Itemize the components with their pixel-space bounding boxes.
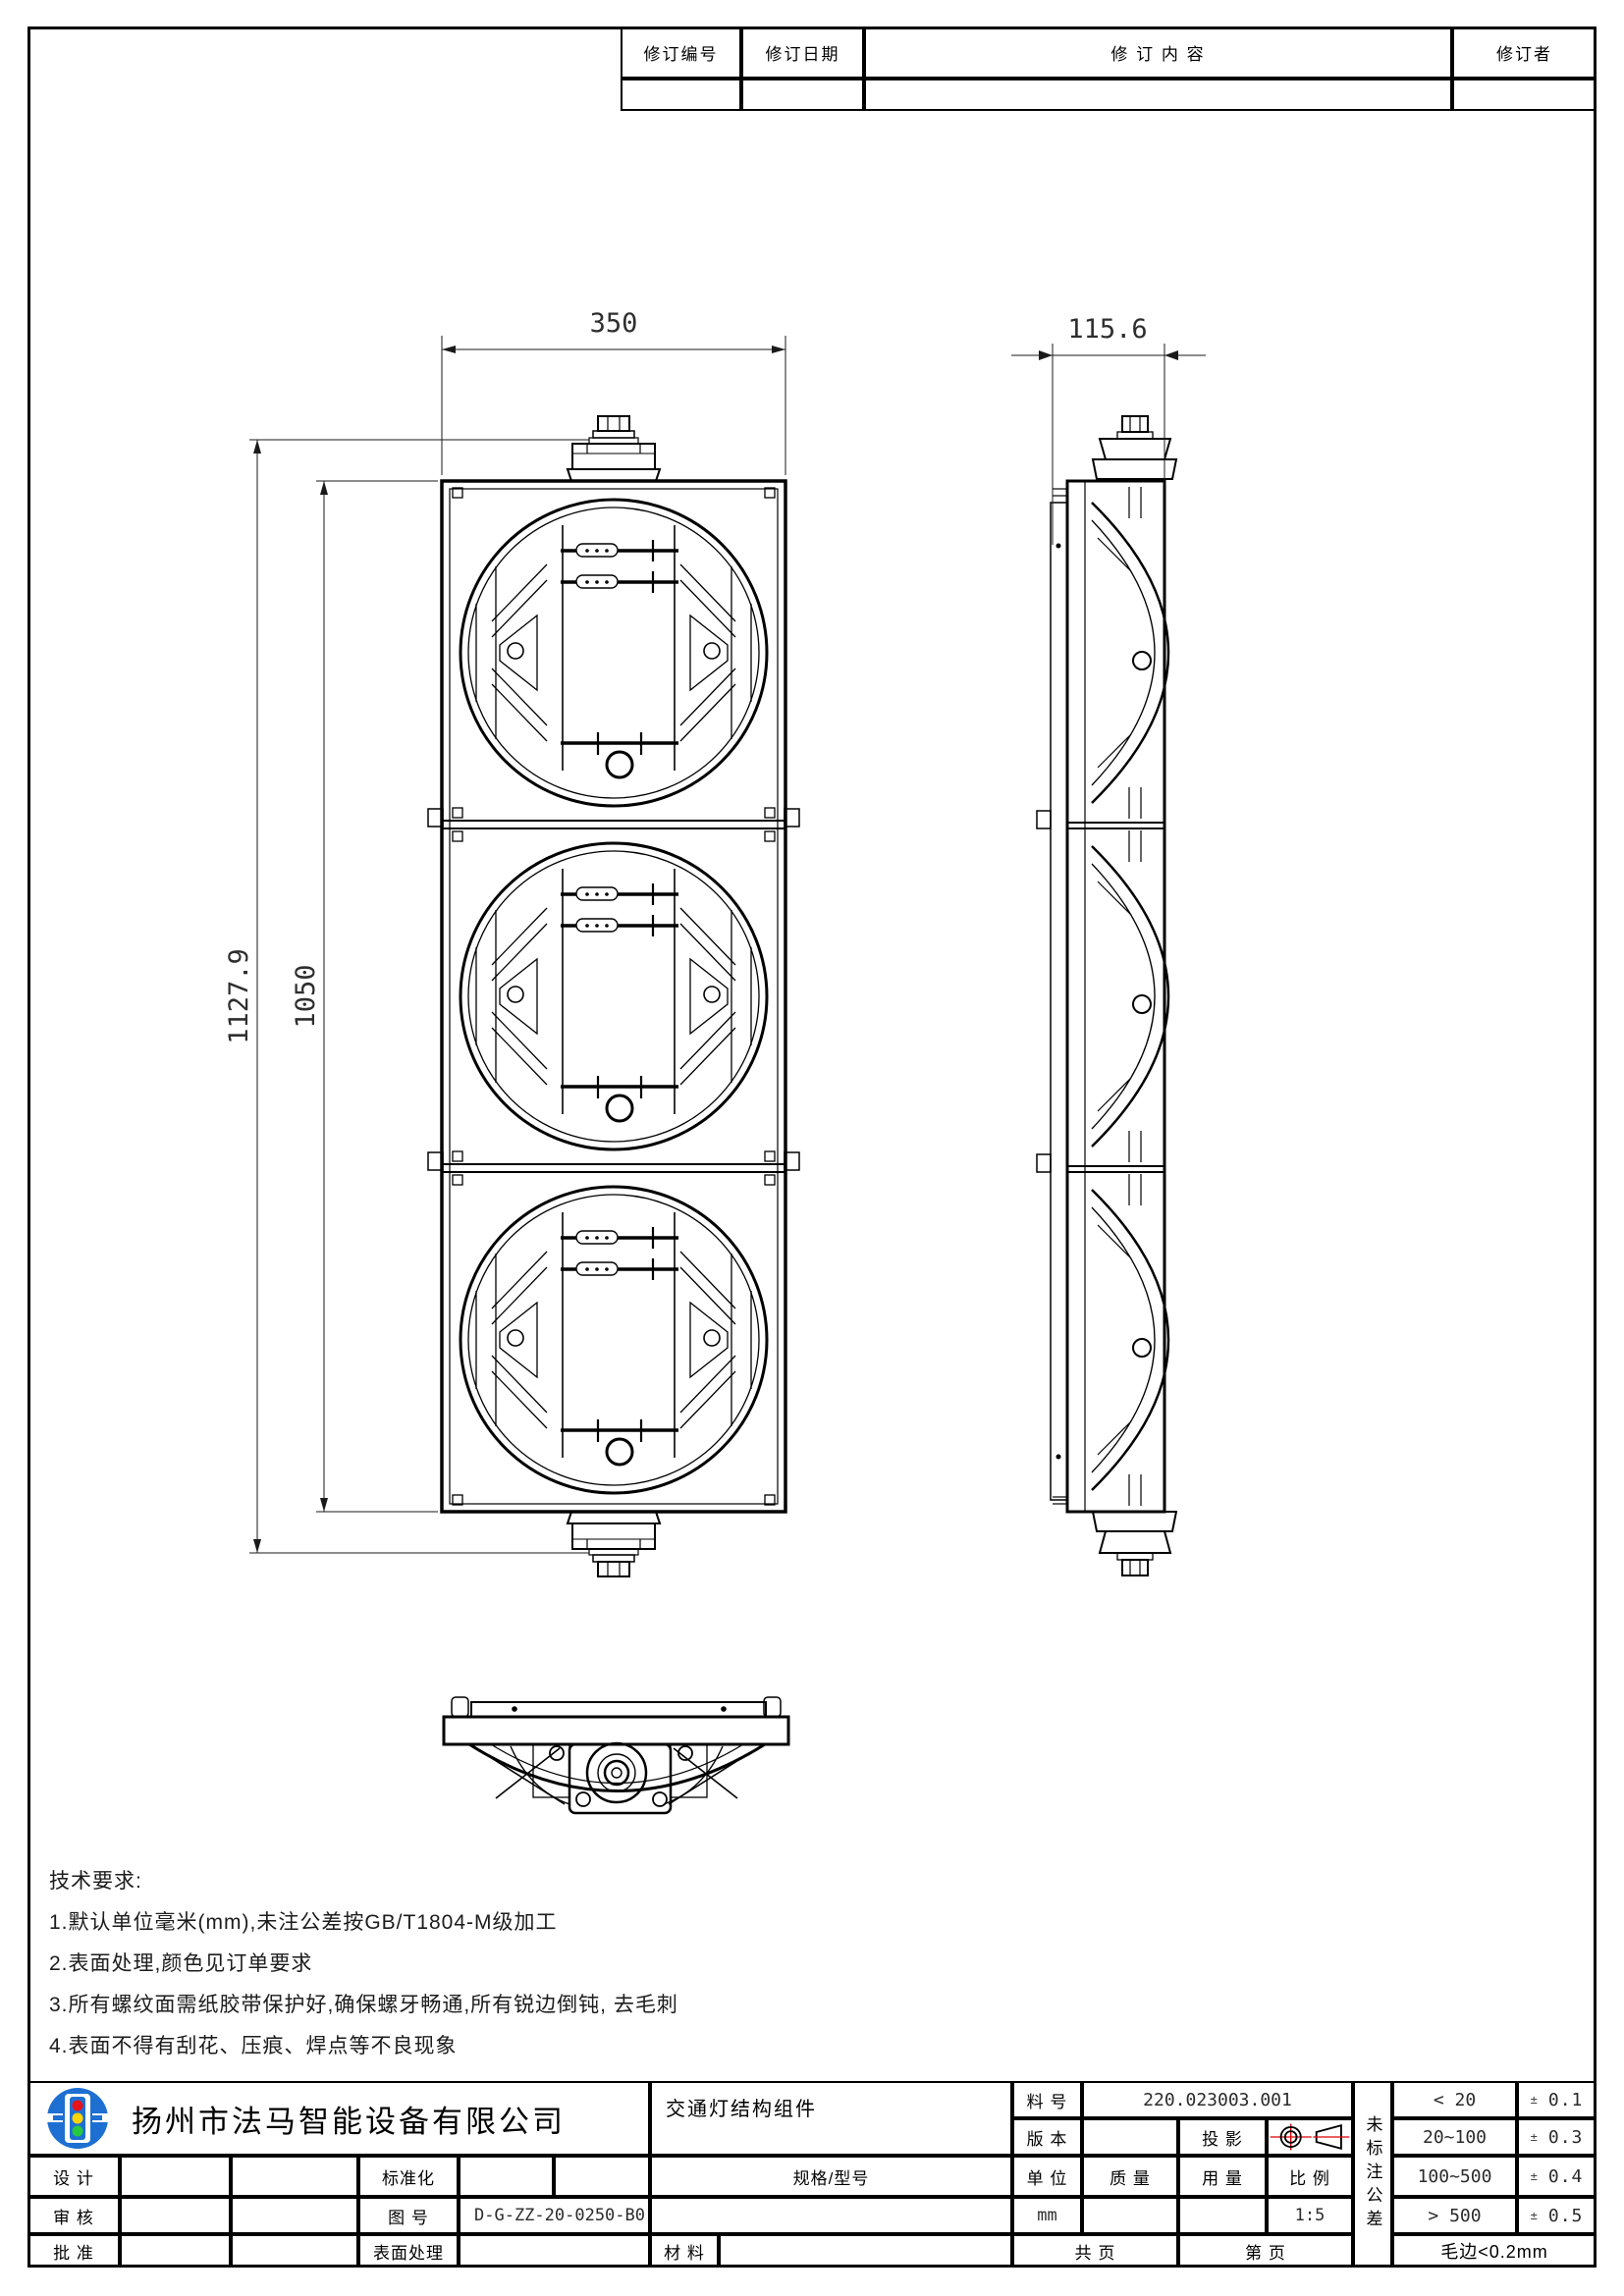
tech-req-item: 2.表面处理,颜色见订单要求 — [49, 1944, 795, 1985]
tolerance-range: < 20 — [1392, 2081, 1517, 2118]
bottom-view — [444, 1697, 788, 1813]
tolerance-range: 100~500 — [1392, 2156, 1517, 2197]
company-cell: 扬州市法马智能设备有限公司 — [27, 2081, 650, 2156]
front-top-bracket — [568, 416, 660, 481]
design-name-empty — [120, 2156, 231, 2197]
front-bottom-bracket — [568, 1512, 660, 1576]
technical-requirements: 技术要求: 1.默认单位毫米(mm),未注公差按GB/T1804-M级加工 2.… — [49, 1861, 795, 2067]
label-scale: 比 例 — [1267, 2156, 1353, 2197]
tolerance-number: 0.3 — [1548, 2127, 1584, 2148]
dimension-depth: 115.6 — [1011, 314, 1206, 545]
side-bottom-bracket — [1093, 1512, 1176, 1575]
value-version-empty — [1082, 2118, 1178, 2156]
dimension-body-height: 1050 — [291, 481, 438, 1512]
approve-date-empty — [231, 2234, 358, 2268]
label-projection: 投 影 — [1178, 2118, 1267, 2156]
label-unmarked-tolerance: 未标注公差 — [1353, 2081, 1392, 2268]
tolerance-range: 20~100 — [1392, 2118, 1517, 2156]
dim-body-height-text: 1050 — [291, 964, 321, 1028]
value-scale: 1:5 — [1267, 2197, 1353, 2234]
label-usage: 用 量 — [1178, 2156, 1267, 2197]
standardization-date-empty — [554, 2156, 650, 2197]
company-name: 扬州市法马智能设备有限公司 — [132, 2097, 566, 2141]
label-unit: 单 位 — [1012, 2156, 1082, 2197]
plus-minus-sign: ± — [1531, 2093, 1539, 2107]
value-unit: mm — [1012, 2197, 1082, 2234]
part-name: 交通灯结构组件 — [650, 2081, 1012, 2156]
company-logo-icon — [45, 2086, 110, 2151]
spec-value-empty — [650, 2197, 1012, 2234]
label-part-no: 料 号 — [1012, 2081, 1082, 2118]
corner-screws — [453, 488, 775, 1505]
tech-req-item: 1.默认单位毫米(mm),未注公差按GB/T1804-M级加工 — [49, 1902, 795, 1944]
tech-req-item: 3.所有螺纹面需纸胶带保护好,确保螺牙畅通,所有锐边倒钝, 去毛刺 — [49, 1985, 795, 2026]
label-version: 版 本 — [1012, 2118, 1082, 2156]
tech-req-title: 技术要求: — [49, 1861, 795, 1902]
tolerance-value: ±0.3 — [1517, 2118, 1597, 2156]
value-drawing-no: D-G-ZZ-20-0250-B0 — [459, 2197, 650, 2234]
label-total-pages: 共 页 — [1012, 2234, 1178, 2268]
dim-depth-text: 115.6 — [1067, 314, 1147, 345]
dimension-total-height: 1127.9 — [224, 440, 589, 1553]
burr-tolerance: 毛边<0.2mm — [1392, 2234, 1597, 2268]
plus-minus-sign: ± — [1531, 2169, 1539, 2183]
drawing-sheet: 修订编号 修订日期 修 订 内 容 修订者 — [0, 0, 1624, 2296]
usage-value-empty — [1178, 2197, 1267, 2234]
dim-width-text: 350 — [590, 308, 638, 339]
label-page-no: 第 页 — [1178, 2234, 1353, 2268]
tolerance-value: ±0.4 — [1517, 2156, 1597, 2197]
plus-minus-sign: ± — [1531, 2130, 1539, 2144]
label-surface-treatment: 表面处理 — [358, 2234, 459, 2268]
tolerance-number: 0.5 — [1548, 2206, 1584, 2226]
tolerance-range: > 500 — [1392, 2197, 1517, 2234]
label-drawing-no: 图 号 — [358, 2197, 459, 2234]
plus-minus-sign: ± — [1531, 2209, 1539, 2222]
label-material: 材 料 — [650, 2234, 719, 2268]
label-design: 设 计 — [27, 2156, 120, 2197]
standardization-name-empty — [459, 2156, 554, 2197]
approve-name-empty — [120, 2234, 231, 2268]
label-mass: 质 量 — [1082, 2156, 1178, 2197]
surface-value-empty — [459, 2234, 650, 2268]
review-name-empty — [120, 2197, 231, 2234]
label-approve: 批 准 — [27, 2234, 120, 2268]
projection-symbol-cell — [1267, 2118, 1353, 2156]
tolerance-number: 0.1 — [1548, 2090, 1584, 2110]
side-view — [1037, 416, 1176, 1575]
dim-total-height-text: 1127.9 — [224, 948, 254, 1044]
projection-symbol-icon — [1269, 2119, 1351, 2155]
tolerance-value: ±0.1 — [1517, 2081, 1597, 2118]
tolerance-value: ±0.5 — [1517, 2197, 1597, 2234]
design-date-empty — [231, 2156, 358, 2197]
label-spec-model: 规格/型号 — [650, 2156, 1012, 2197]
side-top-bracket — [1093, 416, 1176, 479]
mass-value-empty — [1082, 2197, 1178, 2234]
review-date-empty — [231, 2197, 358, 2234]
value-part-no: 220.023003.001 — [1082, 2081, 1353, 2118]
dimension-width: 350 — [442, 308, 785, 475]
label-standardization: 标准化 — [358, 2156, 459, 2197]
tech-req-item: 4.表面不得有刮花、压痕、焊点等不良现象 — [49, 2026, 795, 2067]
label-review: 审 核 — [27, 2197, 120, 2234]
material-value-empty — [719, 2234, 1012, 2268]
front-view — [428, 416, 799, 1576]
tolerance-number: 0.4 — [1548, 2166, 1584, 2187]
